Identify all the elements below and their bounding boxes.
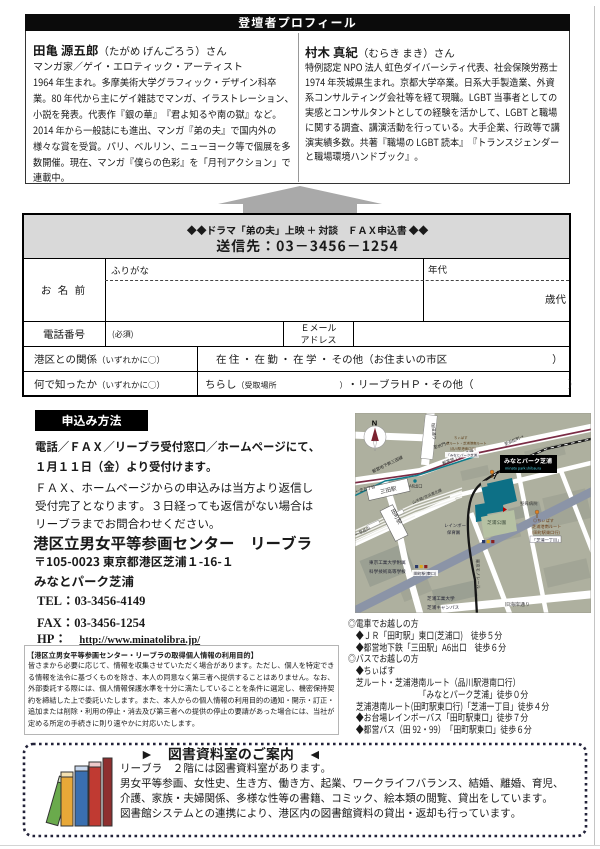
svg-text:「みなとパーク芝浦」: 「みなとパーク芝浦」 — [447, 453, 481, 458]
svg-text:A6出口: A6出口 — [409, 484, 423, 490]
svg-text:みなとパーク芝浦: みなとパーク芝浦 — [504, 456, 552, 465]
svg-text:聖母病院: 聖母病院 — [520, 501, 538, 507]
svg-text:(品川駅港南口行): (品川駅港南口行) — [450, 446, 476, 451]
svg-text:レインボー: レインボー — [444, 523, 466, 529]
svg-text:ちぃばす: ちぃばす — [454, 435, 468, 440]
svg-text:芝浦キャンパス: 芝浦キャンパス — [427, 605, 460, 611]
svg-text:東京工業大学附属: 東京工業大学附属 — [369, 560, 406, 566]
svg-text:芝ルート・芝浦港南ルート: 芝ルート・芝浦港南ルート — [446, 441, 487, 446]
svg-text:芝浦工業大学: 芝浦工業大学 — [427, 596, 455, 602]
svg-text:芝浦公園: 芝浦公園 — [487, 519, 506, 526]
svg-text:旧海岸通り: 旧海岸通り — [505, 601, 530, 608]
svg-text:科学技術高等学校: 科学技術高等学校 — [369, 569, 406, 575]
svg-text:minato park shibaura: minato park shibaura — [505, 467, 541, 472]
svg-text:田町駅(東口): 田町駅(東口) — [414, 571, 437, 577]
svg-text:「芝浦一丁目」: 「芝浦一丁目」 — [532, 538, 561, 544]
svg-text:N: N — [372, 419, 377, 428]
svg-text:東京モノレール: 東京モノレール — [474, 559, 481, 590]
svg-text:保育園: 保育園 — [447, 530, 461, 536]
svg-text:(田町駅東口行): (田町駅東口行) — [532, 530, 561, 536]
